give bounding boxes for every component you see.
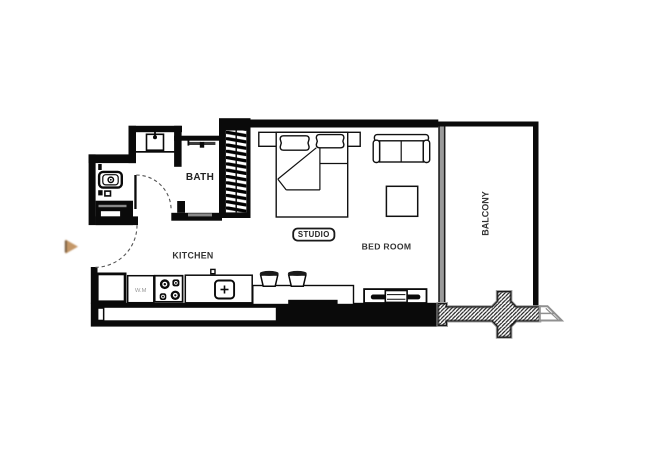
svg-text:BALCONY: BALCONY (480, 191, 490, 236)
svg-text:BED ROOM: BED ROOM (362, 241, 412, 251)
svg-text:KITCHEN: KITCHEN (172, 250, 213, 260)
svg-text:STUDIO: STUDIO (298, 230, 330, 239)
svg-text:W.M: W.M (135, 288, 147, 294)
svg-text:BATH: BATH (186, 172, 214, 183)
